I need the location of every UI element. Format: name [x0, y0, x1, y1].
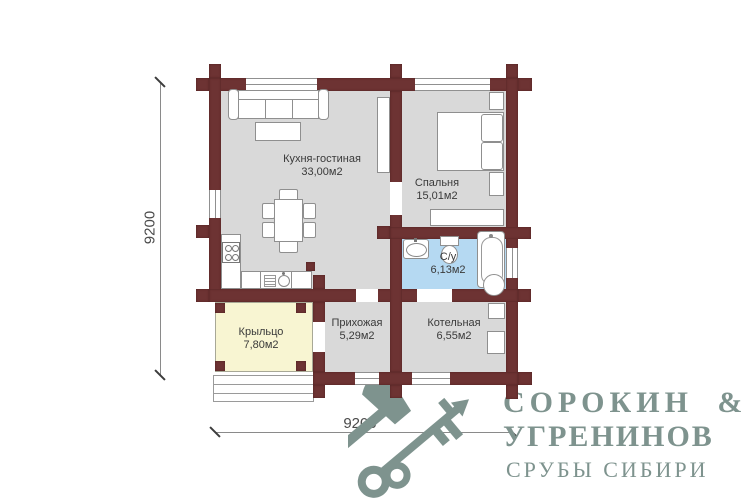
log-stub [518, 372, 532, 385]
water-heater-icon [483, 274, 505, 296]
stove-icon [222, 242, 240, 263]
wall-bedroom-bathroom [390, 227, 531, 239]
bed-icon [437, 112, 504, 171]
dimension-line-left [160, 82, 161, 375]
nightstand-icon [489, 92, 504, 110]
log-stub [196, 78, 209, 91]
logo-line3: СРУБЫ СИБИРИ [506, 457, 708, 483]
log-stub [313, 275, 325, 289]
room-name: Спальня [372, 177, 502, 190]
coffee-table-icon [255, 122, 301, 141]
kitchen-hallway-door-opening [356, 289, 378, 302]
log-stub [506, 64, 518, 78]
bedroom-dresser-icon [430, 209, 504, 226]
boiler-window [412, 372, 450, 385]
log-stub [196, 225, 209, 238]
dining-chair-icon [303, 222, 316, 238]
porch-post [296, 361, 306, 371]
kitchen-sink-icon [260, 271, 292, 289]
porch-post [296, 303, 306, 313]
log-stub [196, 289, 209, 302]
room-area: 33,00м2 [257, 166, 387, 179]
room-name: Котельная [389, 317, 519, 330]
dining-chair-icon [303, 203, 316, 219]
kitchen-post [306, 262, 315, 271]
bedroom-window [415, 78, 490, 91]
room-area: 6,13м2 [383, 264, 513, 277]
room-name: Кухня-гостиная [257, 153, 387, 166]
porch-steps [213, 375, 314, 402]
hallway-window [355, 372, 379, 385]
log-stub [377, 226, 390, 239]
log-stub [313, 385, 325, 398]
room-name: С/у [383, 251, 513, 264]
room-label-bedroom: Спальня 15,01м2 [372, 177, 502, 203]
log-stub [209, 64, 221, 78]
log-stub [518, 78, 532, 91]
dining-table-icon [274, 199, 303, 242]
dimension-left-label: 9200 [142, 193, 159, 263]
logo-line2: УГРЕНИНОВ [503, 420, 714, 454]
bathroom-door-opening [417, 289, 452, 302]
porch-post [215, 303, 225, 313]
room-label-kitchen-living: Кухня-гостиная 33,00м2 [257, 153, 387, 179]
log-stub [506, 385, 518, 399]
room-area: 6,55м2 [389, 330, 519, 343]
log-stub [390, 385, 402, 398]
room-label-boiler: Котельная 6,55м2 [389, 317, 519, 343]
sofa-icon [228, 88, 329, 121]
floor-plan-page: 9200 9200 СОРОКИН & УГРЕНИНОВ СРУБЫ СИБ [0, 0, 753, 502]
porch-post [215, 361, 225, 371]
logo-line1: СОРОКИН & [503, 386, 747, 420]
log-stub [518, 289, 531, 302]
room-area: 15,01м2 [372, 190, 502, 203]
log-stub [390, 64, 402, 78]
room-label-bathroom: С/у 6,13м2 [383, 251, 513, 277]
kitchen-side-window [209, 190, 221, 218]
axe-and-key-logo-icon [348, 383, 510, 502]
